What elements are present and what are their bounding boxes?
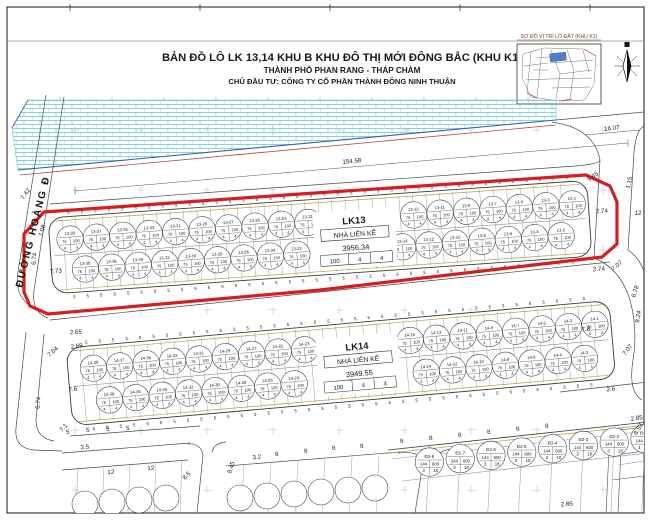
- dimension-label: 7.04: [46, 345, 60, 359]
- dimension-label: 7.07: [621, 343, 634, 357]
- dimension-label: 154.58: [342, 157, 362, 166]
- lot-value: 144: [636, 438, 644, 443]
- lot-code: 13-37: [91, 229, 103, 235]
- lot-code: Đ2-3: [579, 437, 589, 442]
- lot-code: 14-10: [473, 359, 485, 365]
- lot-code: 14-1: [590, 316, 599, 322]
- lot-value: 100: [300, 253, 308, 259]
- lot-value: 100: [469, 210, 477, 216]
- lot-width-tick: 5: [410, 271, 413, 276]
- lot-width-tick: 5: [348, 403, 351, 408]
- lot-value: 18: [587, 452, 592, 457]
- lot-width-tick: 5: [502, 303, 505, 308]
- lot-code: 14-38: [103, 391, 115, 397]
- lot-code: 14-26: [262, 377, 274, 383]
- dimension-label: 12: [147, 465, 155, 473]
- inset-caption: SƠ ĐỒ VỊ TRÍ LÔ ĐẤT (KHU K1): [521, 33, 598, 40]
- dimension-label: 12: [635, 210, 642, 217]
- lot-value: 144: [605, 442, 613, 447]
- lot-code: 14-36: [130, 389, 142, 395]
- lot-width-tick: 5: [152, 334, 155, 339]
- lot-code: 13-2: [556, 227, 565, 233]
- lot-width-tick: 5: [523, 388, 526, 393]
- lot-value: 100: [126, 234, 134, 240]
- lot-value: 100: [202, 358, 210, 364]
- lot-value: 100: [405, 246, 413, 252]
- map-sheet: BẢN ĐỒ LÔ LK 13,14 KHU B KHU ĐÔ THỊ MỚI …: [0, 0, 650, 520]
- lot-width-tick: 5: [200, 416, 203, 421]
- lot-marker: Đ2-5144600318: [508, 438, 536, 466]
- lot-code: 14-13: [430, 329, 442, 335]
- dimension-label: 8.45: [226, 460, 237, 474]
- lot-width-tick: 5: [590, 382, 593, 387]
- lot-code: 14-3: [564, 318, 573, 324]
- lot-code: 13-14: [397, 238, 409, 244]
- lot-width-tick: 5: [308, 407, 311, 412]
- lot-width-tick: 5: [429, 396, 432, 401]
- lot-value: 600: [432, 462, 440, 467]
- lot-value: 100: [231, 227, 239, 233]
- lot-value: 100: [561, 359, 569, 365]
- lot-code: 14-5: [537, 320, 546, 326]
- lot-code: 13-3: [541, 197, 550, 203]
- lot-width-tick: 5: [73, 294, 76, 299]
- lot-code: 14-30: [209, 382, 221, 388]
- lot-code: 13-39: [64, 230, 76, 236]
- lot-width-tick: 5: [260, 324, 263, 329]
- lot-width-tick: 5: [408, 311, 411, 316]
- lot-code: 14-12: [447, 361, 459, 367]
- lot-width-tick: 5: [563, 385, 566, 390]
- lot-width-tick: 5: [448, 308, 451, 313]
- block-label-lk14: LK14NHÀ LIÊN KẾ3949.5510044: [315, 332, 402, 397]
- lot-width-tick: 5: [85, 340, 88, 345]
- lot-value: 144: [574, 445, 582, 450]
- dimension-label: 8: [516, 426, 521, 433]
- lot-code: 13-21: [302, 214, 314, 220]
- lot-width-tick: 5: [388, 400, 391, 405]
- lot-width-tick: 5: [193, 330, 196, 335]
- block-label-lk13: LK13NHÀ LIÊN KẾ3956.3410044: [312, 207, 398, 271]
- lot-value: 100: [545, 328, 553, 334]
- lot-width-tick: 5: [275, 280, 278, 285]
- lot-code: 13-29: [196, 221, 208, 227]
- lot-width-tick: 5: [361, 402, 364, 407]
- lot-code: 14-24: [288, 375, 300, 381]
- lot-width-tick: 5: [112, 337, 115, 342]
- lot-width-tick: 5: [515, 302, 518, 307]
- lot-value: 100: [455, 369, 463, 375]
- lot-width-tick: 5: [340, 317, 343, 322]
- dimension-label: 2.74: [593, 266, 606, 274]
- lot-value: 100: [271, 385, 279, 391]
- lot-width-tick: 5: [146, 421, 149, 426]
- label-table-cell: 100: [333, 385, 344, 392]
- lot-code: 14-23: [299, 341, 311, 347]
- lot-code: Đ2-1: [640, 431, 650, 436]
- lot-width-tick: 5: [437, 269, 440, 274]
- lot-value: 100: [598, 323, 606, 329]
- lot-value: 100: [247, 257, 255, 263]
- lot-code: 14-8: [501, 357, 510, 363]
- lot-value: 100: [112, 399, 120, 405]
- lot-width-tick: 5: [133, 422, 136, 427]
- lot-marker: Đ2-7144600318: [446, 445, 474, 473]
- lot-width-tick: 5: [119, 423, 122, 428]
- lot-width-tick: 5: [394, 312, 397, 317]
- lot-code: 13-24: [265, 247, 277, 253]
- lot-value: 100: [417, 214, 425, 220]
- lot-value: 100: [258, 225, 266, 231]
- block-strip-lk14: 5555555555555555555555555555555555555555…: [65, 294, 616, 433]
- lot-width-tick: 5: [383, 273, 386, 278]
- lot-code: 13-7: [488, 201, 497, 207]
- lot-value: 100: [73, 238, 81, 244]
- lot-width-tick: 5: [113, 291, 116, 296]
- lot-value: 100: [538, 236, 546, 242]
- lot-marker: Đ2-6144600318: [477, 441, 505, 469]
- dimension-label: 8: [275, 451, 280, 458]
- lot-value: 600: [463, 458, 471, 463]
- lot-width-tick: 5: [469, 393, 472, 398]
- dimension-label: 8: [429, 435, 434, 442]
- lot-width-tick: 5: [194, 286, 197, 291]
- lot-value: 100: [466, 335, 474, 341]
- lot-value: 600: [586, 445, 594, 450]
- lot-code: 14-14: [420, 364, 432, 370]
- lot-code: Đ2-6: [486, 447, 496, 452]
- bottom-block-d2: Đ2-1144600318Đ2-2144600318Đ2-3144600318Đ…: [388, 419, 650, 516]
- lot-width-tick: 5: [300, 321, 303, 326]
- dimension-label: 2.85: [630, 414, 643, 423]
- lot-code: Đ2-7: [455, 451, 465, 456]
- lot-width-tick: 5: [488, 304, 491, 309]
- lot-width-tick: 5: [235, 283, 238, 288]
- lot-value: 100: [123, 365, 131, 371]
- map-canvas: BẢN ĐỒ LÔ LK 13,14 KHU B KHU ĐÔ THỊ MỚI …: [0, 0, 650, 520]
- lot-code: 14-15: [404, 332, 416, 338]
- lot-value: 100: [220, 259, 228, 265]
- dimension-label: 2.74: [596, 208, 609, 216]
- label-table-cell: 100: [330, 259, 341, 266]
- lot-value: 144: [420, 462, 428, 467]
- dimension-label: 7.73: [50, 268, 63, 276]
- lot-marker: Đ2-8144600318: [415, 448, 443, 476]
- lot-value: 100: [519, 330, 527, 336]
- map-subtitle-city: THÀNH PHỐ PHAN RANG - THÁP CHÀM: [264, 64, 421, 75]
- lot-width-tick: 5: [421, 310, 424, 315]
- lot-value: 18: [526, 458, 531, 463]
- lot-width-tick: 5: [550, 386, 553, 391]
- lot-width-tick: 5: [402, 399, 405, 404]
- lot-width-tick: 5: [367, 315, 370, 320]
- lot-code: 14-28: [235, 380, 247, 386]
- dimension-label: 5: [86, 427, 91, 434]
- lot-code: 14-34: [156, 387, 168, 393]
- lot-value: 144: [512, 452, 520, 457]
- dimension-label: 8.24: [634, 310, 643, 324]
- lot-width-tick: 5: [160, 420, 163, 425]
- lot-width-tick: 5: [173, 419, 176, 424]
- lot-code: Đ2-8: [425, 454, 435, 459]
- lot-width-tick: 5: [181, 287, 184, 292]
- lot-code: 13-10: [450, 235, 462, 241]
- lot-value: 600: [617, 442, 625, 447]
- lot-width-tick: 5: [423, 270, 426, 275]
- lot-width-tick: 5: [375, 401, 378, 406]
- lot-value: 100: [413, 339, 421, 345]
- lot-width-tick: 5: [302, 278, 305, 283]
- lot-code: 13-22: [291, 246, 303, 252]
- lot-value: 600: [555, 448, 563, 453]
- dimension-label: 7.07: [610, 259, 624, 272]
- lot-value: 100: [564, 235, 572, 241]
- lot-code: 14-27: [246, 346, 258, 352]
- lot-width-tick: 5: [208, 285, 211, 290]
- lot-value: 100: [496, 208, 504, 214]
- lot-value: 100: [205, 229, 213, 235]
- lot-width-tick: 5: [356, 274, 359, 279]
- dimension-label: 8: [487, 429, 492, 436]
- lot-marker: Đ2-2144600318: [600, 428, 628, 456]
- lot-value: 18: [495, 462, 500, 467]
- lot-code: 14-39: [87, 359, 99, 365]
- lot-code: 13-1: [568, 195, 577, 201]
- lot-value: 100: [492, 332, 500, 338]
- lot-width-tick: 5: [450, 268, 453, 273]
- lot-value: 100: [139, 396, 147, 402]
- lot-width-tick: 5: [288, 279, 291, 284]
- lot-width-tick: 5: [396, 272, 399, 277]
- lot-value: 100: [115, 266, 123, 272]
- lot-width-tick: 5: [206, 329, 209, 334]
- dimension-label: 8: [545, 423, 550, 430]
- lot-value: 100: [88, 268, 96, 274]
- lot-value: 100: [587, 357, 595, 363]
- lot-code: 13-38: [79, 260, 91, 266]
- lot-width-tick: 5: [267, 410, 270, 415]
- lot-width-tick: 5: [321, 406, 324, 411]
- lot-width-tick: 5: [139, 335, 142, 340]
- lot-value: 100: [535, 362, 543, 368]
- lot-value: 100: [429, 371, 437, 377]
- lot-width-tick: 5: [456, 394, 459, 399]
- lot-code: 14-9: [484, 325, 493, 331]
- hatched-area: [12, 97, 556, 175]
- lot-value: 100: [96, 367, 104, 373]
- lot-code: 13-8: [477, 233, 486, 239]
- lot-width-tick: 5: [342, 275, 345, 280]
- lot-width-tick: 5: [475, 305, 478, 310]
- lot-width-tick: 5: [167, 288, 170, 293]
- dimension-label: 7.8: [581, 326, 591, 334]
- lot-code: 14-25: [272, 343, 284, 349]
- dimension-label: 8: [360, 443, 365, 450]
- lot-width-tick: 5: [92, 426, 95, 431]
- lot-width-tick: 5: [496, 390, 499, 395]
- lot-width-tick: 5: [335, 405, 338, 410]
- lot-code: 13-31: [170, 223, 182, 229]
- block-area: 3956.34: [342, 242, 370, 253]
- dimension-label: 6.74: [30, 252, 38, 265]
- lot-code: 14-2: [580, 350, 589, 356]
- block-name: LK13: [342, 215, 366, 228]
- lot-width-tick: 5: [281, 409, 284, 414]
- lot-width-tick: 5: [577, 383, 580, 388]
- lot-width-tick: 5: [536, 387, 539, 392]
- lot-code: 13-6: [504, 231, 513, 237]
- lot-value: 100: [152, 232, 160, 238]
- lot-code: 13-13: [408, 206, 420, 212]
- map-subtitle-investor: CHỦ ĐẦU TƯ: CÔNG TY CỔ PHẦN THÀNH ĐÔNG N…: [228, 76, 455, 86]
- dimension-label: 16.07: [604, 124, 621, 133]
- lot-value: 100: [165, 394, 173, 400]
- lot-value: 100: [549, 205, 557, 211]
- lot-value: 100: [485, 240, 493, 246]
- dimension-label: 5: [126, 425, 131, 432]
- lot-width-tick: 5: [125, 336, 128, 341]
- lot-width-tick: 5: [529, 301, 532, 306]
- lot-code: 13-23: [276, 216, 288, 222]
- lot-code: 13-4: [530, 229, 539, 235]
- lot-code: 13-33: [143, 225, 155, 231]
- lot-value: 100: [432, 244, 440, 250]
- lot-value: 100: [244, 387, 252, 393]
- lot-code: 14-37: [114, 357, 126, 363]
- lot-code: 13-12: [423, 236, 435, 242]
- lot-value: 100: [511, 238, 519, 244]
- lot-width-tick: 5: [166, 332, 169, 337]
- lot-value: 100: [458, 242, 466, 248]
- lot-code: 13-35: [117, 227, 129, 233]
- lot-value: 100: [194, 261, 202, 267]
- map-title: BẢN ĐỒ LÔ LK 13,14 KHU B KHU ĐÔ THỊ MỚI …: [162, 51, 522, 64]
- lot-code: 14-7: [511, 323, 520, 329]
- lot-code: 14-29: [219, 348, 231, 354]
- lot-code: 14-35: [140, 355, 152, 361]
- dimension-label: 8: [304, 448, 309, 455]
- dimension-label: 2.5: [80, 444, 90, 452]
- lot-width-tick: 5: [583, 296, 586, 301]
- lot-width-tick: 5: [569, 297, 572, 302]
- lot-code: 14-4: [553, 352, 562, 358]
- dimension-label: 8: [400, 438, 405, 445]
- lot-width-tick: 5: [221, 284, 224, 289]
- lot-value: 100: [522, 206, 530, 212]
- dimension-label: 8: [458, 432, 463, 439]
- lot-value: 100: [218, 389, 226, 395]
- lot-width-tick: 5: [98, 338, 101, 343]
- lot-code: 13-26: [238, 249, 250, 255]
- dimension-label: 3.2: [252, 454, 262, 462]
- lot-value: 100: [281, 351, 289, 357]
- lot-width-tick: 5: [246, 325, 249, 330]
- lot-value: 100: [297, 382, 305, 388]
- lot-value: 100: [284, 223, 292, 229]
- lot-width-tick: 5: [415, 397, 418, 402]
- lot-code: 13-11: [434, 205, 445, 211]
- lot-value: 18: [464, 465, 469, 470]
- lot-code: 13-5: [515, 199, 524, 205]
- lot-value: 18: [433, 468, 438, 473]
- lot-width-tick: 5: [100, 292, 103, 297]
- lot-value: 100: [228, 355, 236, 361]
- dimension-label: 8: [332, 445, 337, 452]
- lot-code: 14-31: [193, 350, 205, 356]
- lot-value: 100: [179, 231, 187, 237]
- inset-location-map: [517, 44, 601, 104]
- lot-width-tick: 5: [154, 289, 157, 294]
- lot-code: 13-32: [159, 255, 171, 261]
- lot-width-tick: 5: [509, 389, 512, 394]
- lot-width-tick: 5: [287, 322, 290, 327]
- lot-code: 13-30: [185, 253, 197, 259]
- lot-value: 100: [439, 337, 447, 343]
- lot-width-tick: 5: [294, 408, 297, 413]
- lot-code: 13-25: [249, 217, 261, 223]
- dimension-label: 2.65: [70, 329, 83, 337]
- lot-width-tick: 5: [248, 282, 251, 287]
- lot-value: 100: [571, 325, 579, 331]
- lot-value: 100: [273, 255, 281, 261]
- lot-width-tick: 5: [179, 331, 182, 336]
- lot-width-tick: 5: [227, 414, 230, 419]
- dimension-label: 2.6: [606, 386, 616, 394]
- block-name: LK14: [345, 341, 370, 354]
- lot-value: 100: [175, 360, 183, 366]
- lot-width-tick: 5: [219, 328, 222, 333]
- lot-value: 18: [618, 448, 623, 453]
- lot-code: 13-27: [223, 219, 235, 225]
- lot-value: 100: [482, 366, 490, 372]
- lot-width-tick: 5: [127, 290, 130, 295]
- lot-value: 100: [149, 362, 157, 368]
- lot-value: 100: [168, 262, 176, 268]
- lot-width-tick: 5: [315, 277, 318, 282]
- lot-code: Đ2-2: [609, 434, 619, 439]
- lot-width-tick: 5: [329, 276, 332, 281]
- dimension-label: 5: [66, 429, 71, 436]
- lot-value: 144: [482, 455, 490, 460]
- dimension-label: 7.6: [68, 386, 78, 394]
- lot-value: 100: [443, 212, 451, 218]
- lot-value: 100: [508, 364, 516, 370]
- lot-value: 144: [543, 448, 551, 453]
- lot-width-tick: 5: [273, 323, 276, 328]
- lot-marker: Đ2-4144600318: [538, 435, 566, 463]
- lot-code: 14-32: [183, 384, 195, 390]
- lot-width-tick: 5: [369, 274, 372, 279]
- north-arrow-icon: [614, 42, 640, 82]
- lot-code: 13-36: [106, 259, 118, 265]
- dimension-label: 6.74: [34, 396, 42, 409]
- dimension-label: 8.5: [181, 470, 192, 481]
- lot-value: 600: [494, 455, 502, 460]
- lot-code: 14-33: [167, 353, 179, 359]
- lot-width-tick: 5: [435, 309, 438, 314]
- lot-code: 13-9: [462, 203, 471, 209]
- lot-value: 100: [255, 353, 263, 359]
- lot-width-tick: 5: [233, 327, 236, 332]
- lot-code: Đ2-4: [548, 441, 558, 446]
- lot-width-tick: 5: [461, 307, 464, 312]
- lot-width-tick: 5: [240, 413, 243, 418]
- lot-value: 600: [524, 452, 532, 457]
- dimension-label: 12: [107, 469, 115, 477]
- lot-width-tick: 5: [381, 314, 384, 319]
- lot-value: 144: [451, 458, 459, 463]
- street-name-left: ĐƯỜNG HOÀNG Đ: [12, 174, 52, 289]
